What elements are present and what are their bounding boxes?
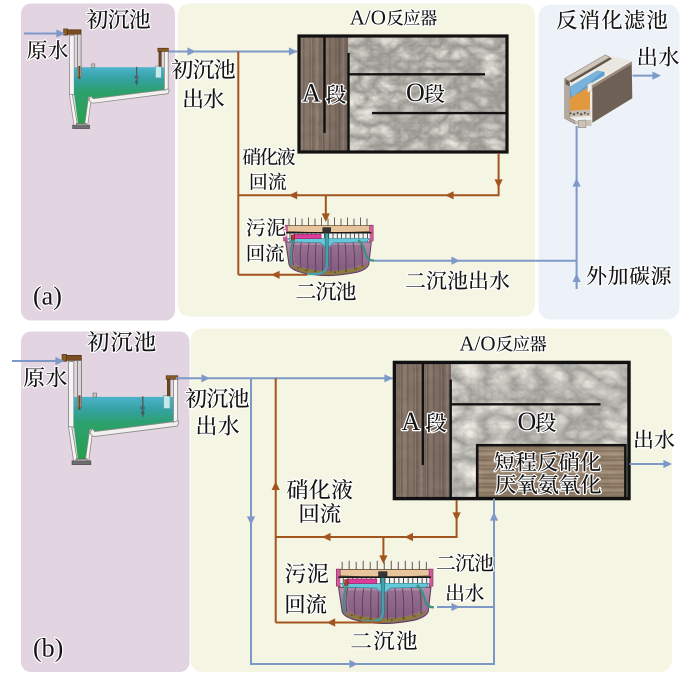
svg-text:A: A [402,407,421,436]
svg-text:(b): (b) [33,634,63,663]
svg-text:(a): (a) [33,282,62,311]
svg-text:O: O [518,407,537,436]
svg-text:A: A [302,79,321,108]
svg-text:A/O: A/O [350,6,386,30]
svg-text:O: O [406,78,425,107]
svg-text:A/O: A/O [459,332,495,356]
